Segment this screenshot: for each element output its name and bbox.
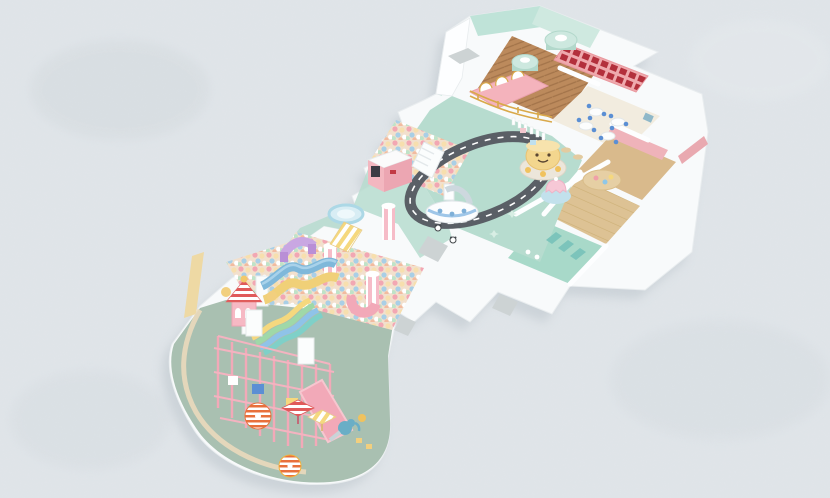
toilet-sink [535, 255, 540, 260]
striped-column [366, 271, 380, 308]
wood-toy-platform [583, 170, 621, 190]
structure-panel-white [228, 376, 238, 385]
yellow-stool [366, 444, 372, 449]
reception-round-table-2 [512, 55, 538, 72]
yellow-dome [221, 287, 231, 297]
trampoline-stage [329, 205, 363, 223]
striped-column [382, 203, 396, 240]
spiral-umbrella [245, 403, 271, 429]
spiral-umbrella [279, 455, 301, 477]
reception-round-table-1 [545, 31, 577, 50]
structure-white-tower [246, 310, 262, 336]
playhouse-window [371, 166, 380, 177]
carousel-pavilion [520, 140, 566, 180]
structure-panel-blue [252, 384, 264, 394]
structure-white-tower [298, 338, 314, 364]
yellow-dome [267, 291, 277, 301]
toilet-sink [526, 250, 531, 255]
tower-finial [241, 276, 248, 283]
duck-toy [358, 414, 366, 422]
yellow-stool [356, 438, 362, 443]
playground-floorplan-render [0, 0, 830, 498]
render-canvas [0, 0, 830, 498]
